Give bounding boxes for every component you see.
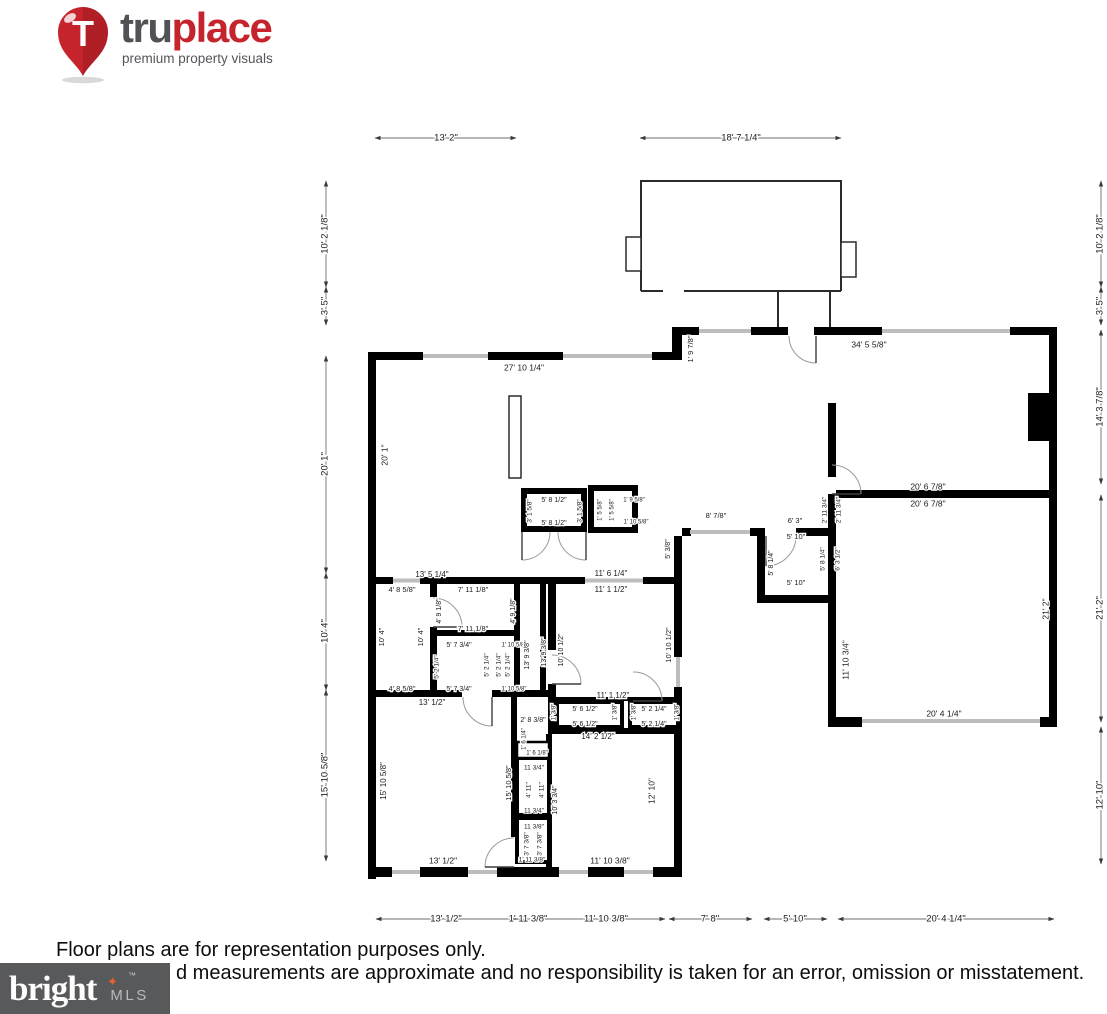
dimension-label: 20' 4 1/4" [926,914,966,925]
dimension-label: 4' 9 1/8" [510,598,517,624]
dimension-label: 1' 6 1/8" [526,751,548,757]
dimension-label: 20' 1" [379,444,389,465]
dimension-label: 3' 5" [320,297,331,315]
dimension-label: 5' 2 1/4" [434,655,441,679]
dimension-label: 13' 2" [434,133,458,144]
dimension-label: 11 3/4" [524,808,545,815]
dimension-label: 13' 1/2" [419,698,446,707]
dimension-label: 13' 1/2" [429,855,457,865]
dimension-label: 11' 10 3/8" [584,914,628,925]
dimension-label: 11 3/4" [524,765,545,772]
floor-plan: 13' 2"18' 7 1/4"10' 2 1/8"3' 5"20' 1"10'… [0,0,1107,1014]
dimension-label: 10' 10 1/2" [664,627,673,663]
dimension-label: 5' 2 1/4" [505,653,512,677]
dimension-label: 1' 10 5/8" [502,687,527,693]
star-icon: ✦ [107,974,118,990]
dimension-label: 5' 6 1/2" [572,706,598,713]
truplace-floorplan-page: T truplace premium property visuals [0,0,1107,1014]
dimension-label: 1' 3/8" [552,704,558,721]
dimension-label: 10' 4" [416,627,425,646]
dimension-label: 1' 10 5/8" [502,643,527,649]
dimension-label: 1' 3/8" [632,704,638,721]
dimension-label: 21' 2" [1040,598,1050,619]
dimension-label: 5' 8 1/4" [820,547,827,571]
dimension-label: 5' 10" [787,532,806,541]
dimension-label: 5' 8 1/2" [541,520,567,527]
dimension-label: 15' 10 5/8" [379,762,388,800]
dimension-label: 1' 6 1/4" [522,728,528,750]
dimension-label: 18' 7 1/4" [721,133,761,144]
dimension-label: 7' 11 1/8" [458,585,489,594]
dimension-label: 11' 6 1/4" [595,569,628,578]
dimension-label: 5' 8 1/4" [768,550,775,576]
dimension-lines [326,138,1101,919]
dimension-label: 4' 8 5/8" [388,585,415,594]
dimension-label: 10' 4" [377,627,386,646]
dimension-label: 1' 5 5/8" [610,499,616,521]
dimension-label: 1' 3/8" [613,704,619,721]
dimension-label: 4' 11" [526,781,533,797]
dimension-label: 27' 10 1/4" [504,362,544,372]
deck-step-left [626,237,641,271]
dimension-label: 5' 2 1/4" [484,653,491,677]
dimension-label: 3' 1 5/8" [577,499,584,523]
bright-mls-wordmark: bright [9,963,96,1014]
dimension-label: 6' 3" [788,516,803,525]
dimension-label: 15' 10 5/8" [504,765,513,801]
dimension-labels: 13' 2"18' 7 1/4"10' 2 1/8"3' 5"20' 1"10'… [320,133,1106,925]
dimension-label: 10' 2 1/8" [320,214,331,254]
dimension-label: 1' 5 5/8" [598,499,604,521]
dimension-label: 12' 10" [646,778,656,804]
dimension-label: 2' 11 3/4" [836,496,843,523]
dimension-label: 21' 2" [1095,596,1106,620]
dimension-label: 13' 9 3/8" [524,640,531,670]
windows [392,329,1040,874]
dimension-label: 5' 6 1/2" [572,721,598,728]
dimension-label: 5' 7 3/4" [446,686,472,693]
dimension-label: 4' 8 5/8" [388,684,415,693]
dimension-label: 4' 11" [539,781,546,797]
dimension-label: 10' 3 3/4" [552,785,559,815]
dimension-label: 11' 1 1/2" [595,585,628,594]
bright-mls-logo: bright ✦ ™ MLS [0,963,170,1014]
walls [368,327,1057,879]
dimension-label: 1' 9 5/8" [623,498,645,504]
dimension-label: 20' 4 1/4" [926,708,961,718]
dimension-label: 3' 7 3/8" [524,832,531,856]
dimension-label: 1' 10 5/8" [624,520,649,526]
dimension-label: 20' 6 7/8" [910,481,945,491]
dimension-label: 34' 5 5/8" [851,339,886,349]
dimension-label: 13' 1/2" [430,914,462,925]
dimension-label: 5' 7 3/4" [446,642,472,649]
dimension-label: 5' 10" [787,578,806,587]
dimension-label: 5' 2 1/4" [641,721,667,728]
fireplace [1028,393,1054,441]
dimension-label: 13' 5 1/4" [415,570,448,579]
disclaimer-line-2: d measurements are approximate and no re… [176,962,1084,985]
dimension-label: 1' 11 3/8" [509,914,548,925]
dimension-label: 10' 4" [320,619,331,643]
dimension-label: 20' 1" [320,452,331,476]
dimension-label: 10' 2 1/8" [1095,214,1106,254]
dimension-label: 1' 9 7/8" [686,335,695,362]
dimension-label: 11' 10 3/4" [840,640,850,679]
dimension-label: 20' 6 7/8" [910,498,945,508]
dimension-label: 1' 3/8" [675,704,681,721]
dimension-label: 7' 8" [701,914,719,925]
dimension-label: 2' 8 3/8" [520,717,546,724]
dimension-label: 8' 7/8" [706,511,727,520]
dimension-label: 13' 9 3/8" [541,637,548,667]
dimension-label: 10' 10 1/2" [558,633,565,667]
dimension-label: 11' 1 1/2" [597,691,630,700]
deck-step-right [841,242,856,277]
dimension-label: 15' 10 5/8" [320,753,331,798]
dimension-label: 1' 11 3/8" [519,857,546,864]
dimension-label: 4' 9 1/8" [436,598,443,624]
dimension-label: 7' 11 1/8" [458,624,489,633]
dimension-label: 14' 2 1/2" [581,732,614,741]
dimension-label: 6' 3 1/2" [835,547,842,571]
dimension-label: 5' 3/8" [665,539,672,559]
trademark-symbol: ™ [128,971,136,980]
kitchen-counter [509,396,521,478]
dimension-label: 12' 10" [1095,781,1106,810]
dimension-label: 5' 10" [783,914,807,925]
dimension-label: 11 3/8" [524,824,545,831]
disclaimer-line-1: Floor plans are for representation purpo… [56,939,486,962]
dimension-label: 11' 10 3/8" [590,855,629,865]
dimension-label: 3' 1 5/8" [527,499,534,523]
dimension-label: 5' 2 1/4" [641,706,667,713]
dimension-label: 5' 8 1/2" [541,497,567,504]
dimension-label: 14' 3 7/8" [1095,387,1106,427]
dimension-label: 2' 11 3/4" [822,496,829,523]
dimension-label: 5' 2 1/4" [496,653,503,677]
dimension-label: 3' 7 3/8" [537,832,544,856]
dimension-label: 3' 5" [1095,297,1106,315]
